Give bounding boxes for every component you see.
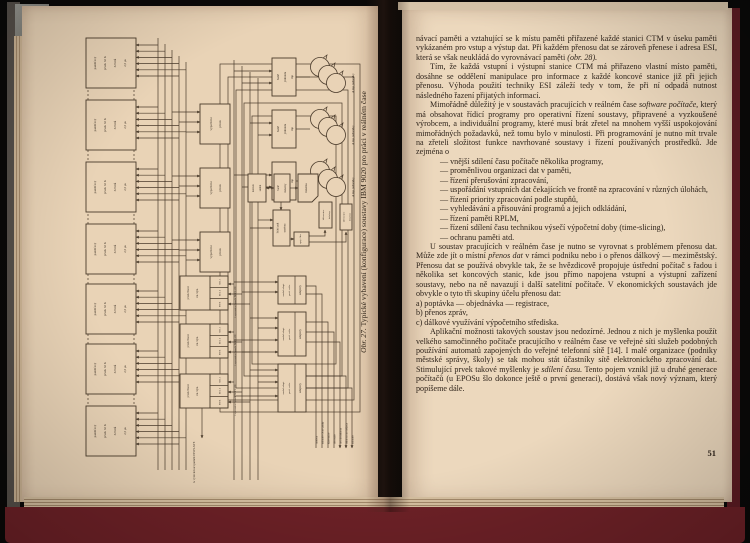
memory-element-label: paměťový xyxy=(93,180,97,193)
wire xyxy=(309,232,346,242)
paragraph: Tím, že každá vstupní i výstupní stanice… xyxy=(416,62,717,100)
text-run: — vyhledávání a přisouvání programů a je… xyxy=(440,204,627,213)
control-desk-label: řídicí pult xyxy=(277,222,280,233)
printer-controller-label: tiskárny xyxy=(284,183,287,192)
memory-element-label: 32 bitů xyxy=(112,364,117,373)
tape-controller-label: řadič xyxy=(276,125,280,132)
tape-unit-reel xyxy=(327,126,346,145)
paragraph: Aplikační možnosti takových soustav jsou… xyxy=(416,327,717,393)
text-run: — řízení přerušování zpracování, xyxy=(440,176,548,185)
tape-units-label: 4 mp jednotky xyxy=(351,177,355,197)
peripheral-wire xyxy=(306,332,334,448)
console-label: konzol. xyxy=(252,184,255,192)
memory-element-label: paměťový xyxy=(93,424,97,437)
list-item-alpha: a) poptávka — objednávka — registrace, xyxy=(416,299,717,308)
io-control-label: prvek řízení xyxy=(187,286,190,299)
memory-element-label: 32 bitů xyxy=(112,120,117,129)
tape-unit-reel xyxy=(327,178,346,197)
adapters-label: adaptéry xyxy=(298,284,302,295)
compute-element-box xyxy=(200,232,230,272)
connector-label: spoj. člen xyxy=(299,233,302,243)
figure-page: paměťovýprvek 32 K32 bitů2,5 μspaměťovýp… xyxy=(22,6,378,502)
memory-element-label: paměťový xyxy=(93,362,97,375)
peripheral-label: snímače děrné pásky xyxy=(322,421,325,444)
adapter-module-label: perif. zaříz. xyxy=(288,284,291,296)
peripheral-label: klávesnice xyxy=(328,432,331,444)
list-item: — řízení priority zpracování podle stupň… xyxy=(416,195,717,204)
keyboard-printer-label: tiskárny xyxy=(328,210,331,219)
memory-element-label: prvek 32 K xyxy=(103,179,107,194)
io-cell-label: SEL 2 xyxy=(219,387,222,394)
printer-shape xyxy=(298,174,318,202)
text-run: c) dálkové využívání výpočetního středis… xyxy=(416,318,559,327)
printer-label: tiskárna xyxy=(304,183,308,193)
peripheral-wire xyxy=(306,286,316,448)
page-number: 51 xyxy=(708,448,717,458)
list-item: — řízení sdílení času technikou výsečí v… xyxy=(416,223,717,232)
list-item-alpha: c) dálkové využívání výpočetního středis… xyxy=(416,318,717,327)
tape-units-label: 4 mp jednotky xyxy=(351,73,355,93)
console-label: stolek xyxy=(259,184,262,191)
memory-element-label: paměťový xyxy=(93,118,97,131)
text-run: a) poptávka — objednávka — registrace, xyxy=(416,299,549,308)
text-run: — uspořádání vstupních dat čekajících ve… xyxy=(440,185,708,194)
io-control-label: vst./výst. xyxy=(196,386,199,396)
io-control-label: vst./výst. xyxy=(196,336,199,346)
peripheral-wire xyxy=(306,294,322,448)
text-run: b) přenos zpráv, xyxy=(416,308,468,317)
memory-element-label: prvek 32 K xyxy=(103,361,107,376)
memory-element-label: 32 bitů xyxy=(112,244,117,253)
text-column: návací paměti a vztahující se k místu pa… xyxy=(416,34,717,393)
compute-element-label: výpočetní xyxy=(209,117,213,130)
memory-element-label: prvek 32 K xyxy=(103,301,107,316)
tape-controller-label: mp xyxy=(290,75,294,79)
list-item: — ochranu paměti atd. xyxy=(416,233,717,242)
io-cell-label: SEL 1 xyxy=(219,376,222,383)
figure-diagram: paměťovýprvek 32 K32 bitů2,5 μspaměťovýp… xyxy=(24,10,372,512)
io-control-label: prvek řízení xyxy=(187,384,190,397)
control-desk-label: systému xyxy=(284,223,287,232)
peripheral-label: děrovače xyxy=(334,433,337,444)
list-item: — vnější sdílení času počítače několika … xyxy=(416,157,717,166)
text-run: Tím, že každá vstupní i výstupní stanice… xyxy=(416,62,717,99)
text-run: software počítače, xyxy=(639,100,698,109)
io-cell-label: MPX xyxy=(219,301,222,307)
console-box xyxy=(248,174,266,202)
memory-element-label: paměťový xyxy=(93,242,97,255)
io-cell-label: SEL 1 xyxy=(219,278,222,285)
keyboard-printer-label: klávesnice xyxy=(322,209,325,220)
tape-unit-reel xyxy=(327,74,346,93)
memory-element-label: prvek 32 K xyxy=(103,241,107,256)
compute-element-label: prvek xyxy=(218,120,222,128)
book-gutter-shadow xyxy=(366,0,410,512)
memory-element-label: prvek 32 K xyxy=(103,423,107,438)
text-page: návací paměti a vztahující se k místu pa… xyxy=(402,8,732,502)
text-run: — proměnlivou organizaci dat v paměti, xyxy=(440,166,571,175)
adapter-module-label: modul adapt. xyxy=(282,327,285,340)
page-top-edge xyxy=(398,2,728,10)
io-control-label: prvek řízení xyxy=(187,334,190,347)
text-run: — vnější sdílení času počítače několika … xyxy=(440,157,603,166)
compute-element-label: prvek xyxy=(218,248,222,256)
peripheral-label: snímače xyxy=(352,434,355,444)
memory-element-label: prvek 32 K xyxy=(103,117,107,132)
io-cell-label: SEL 2 xyxy=(219,337,222,344)
compute-element-label: prvek xyxy=(218,184,222,192)
tape-controller-label: jednotek xyxy=(283,123,287,135)
compute-element-label: výpočetní xyxy=(209,181,213,194)
text-run: Mimořádně důležitý je v soustavách pracu… xyxy=(430,100,639,109)
io-control-label: vst./výst. xyxy=(196,288,199,298)
text-run: přenos dat xyxy=(488,251,523,260)
adapters-label: adaptéry xyxy=(298,328,302,339)
memory-element-label: prvek 32 K xyxy=(103,55,107,70)
book-cover-bottom xyxy=(5,507,745,543)
adapters-label: adaptéry xyxy=(298,382,302,393)
memory-element-label: paměťový xyxy=(93,302,97,315)
peripheral-label: rychlá tiskárna xyxy=(340,427,343,444)
adapter-module-label: perif. zaříz. xyxy=(288,382,291,394)
text-run: — řízení priority zpracování podle stupň… xyxy=(440,195,578,204)
compute-element-box xyxy=(200,104,230,144)
io-cell-label: SEL 2 xyxy=(219,289,222,296)
wire xyxy=(309,230,325,236)
paragraph: U soustav pracujících v reálném čase je … xyxy=(416,242,717,299)
text-run: sdílení času. xyxy=(541,365,582,374)
adapter-module-label: modul adapt. xyxy=(282,381,285,394)
display-buffer-label: k vyrovnávací paměti DISPLAYE xyxy=(234,384,237,416)
list-item: — vyhledávání a přisouvání programů a je… xyxy=(416,204,717,213)
io-cell-label: MPX xyxy=(219,399,222,405)
peripheral-label: tiskárna na doklady xyxy=(346,422,349,444)
text-run: — řízení paměti RPLM, xyxy=(440,214,519,223)
tape-controller-label: mp xyxy=(290,127,294,131)
memory-element-label: 32 bitů xyxy=(112,182,117,191)
keyboard-printer-label: klávesnice xyxy=(343,211,346,222)
paragraph: návací paměti a vztahující se k místu pa… xyxy=(416,34,717,62)
io-cell-label: SEL 1 xyxy=(219,326,222,333)
text-run: — ochranu paměti atd. xyxy=(440,233,514,242)
adapter-module-label: perif. zaříz. xyxy=(288,328,291,340)
display-buffer-label: k vyrovnávací paměti DISPLAYE xyxy=(234,286,237,318)
display-buffer-label: k vyrovnávací paměti DISPLAYE xyxy=(192,441,196,482)
adapter-module-label: modul adapt. xyxy=(282,283,285,296)
tape-controller-label: řadič xyxy=(276,73,280,80)
list-item: — řízení paměti RPLM, xyxy=(416,214,717,223)
memory-element-label: 32 bitů xyxy=(112,426,117,435)
list-item: — uspořádání vstupních dat čekajících ve… xyxy=(416,185,717,194)
peripheral-label: modem xyxy=(316,435,319,444)
book-photo: paměťovýprvek 32 K32 bitů2,5 μspaměťovýp… xyxy=(0,0,750,543)
text-run: — řízení sdílení času technikou výsečí v… xyxy=(440,223,665,232)
text-run: (obr. 28). xyxy=(567,53,597,62)
compute-element-box xyxy=(200,168,230,208)
list-item: — proměnlivou organizaci dat v paměti, xyxy=(416,166,717,175)
compute-element-label: výpočetní xyxy=(209,245,213,258)
display-buffer-label: k vyrovnávací paměti DISPLAYE xyxy=(234,334,237,366)
memory-element-label: paměťový xyxy=(93,56,97,69)
tape-controller-label: jednotek xyxy=(283,71,287,83)
memory-element-label: 32 bitů xyxy=(112,304,117,313)
keyboard-printer-label: tiskárny xyxy=(349,212,352,221)
tape-units-label: 4 mp jednotky xyxy=(351,125,355,145)
paragraph: Mimořádně důležitý je v soustavách pracu… xyxy=(416,100,717,157)
io-cell-label: MPX xyxy=(219,349,222,355)
peripheral-wire xyxy=(306,322,328,448)
tape-controller-label: mp xyxy=(290,179,294,183)
list-item-alpha: b) přenos zpráv, xyxy=(416,308,717,317)
memory-element-label: 32 bitů xyxy=(112,58,117,67)
printer-controller-label: řadič xyxy=(277,185,280,191)
list-item: — řízení přerušování zpracování, xyxy=(416,176,717,185)
